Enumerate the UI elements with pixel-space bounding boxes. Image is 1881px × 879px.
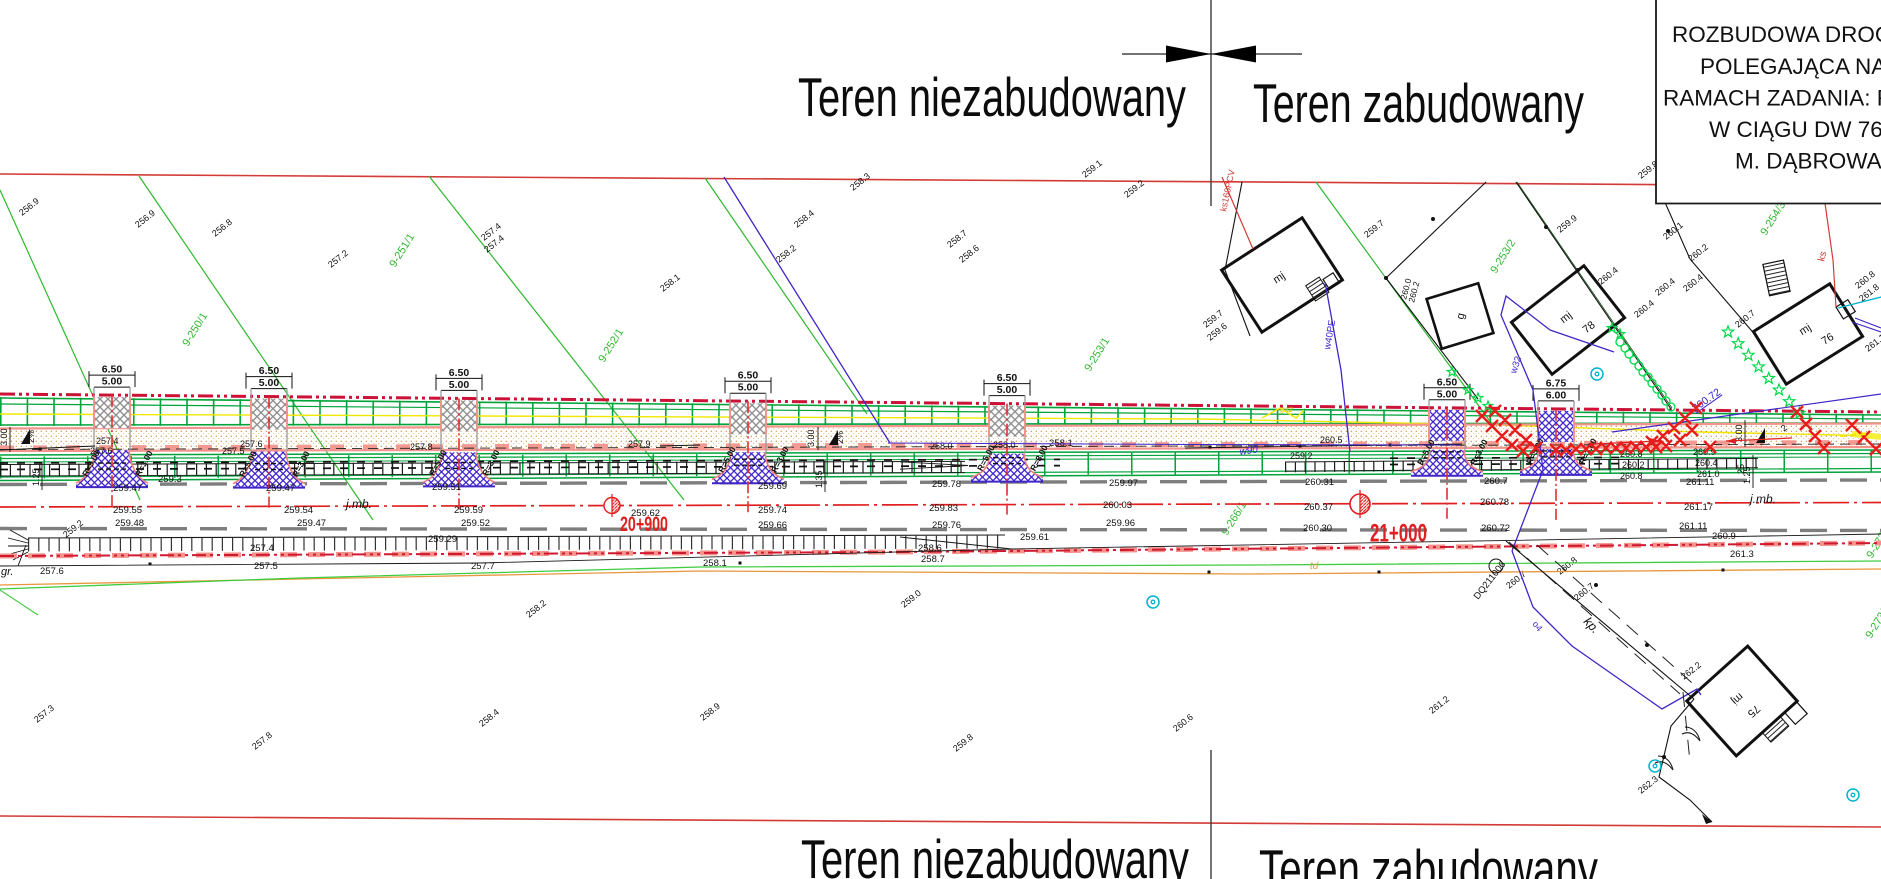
svg-text:25: 25 <box>1736 464 1746 474</box>
svg-text:257.5: 257.5 <box>254 561 278 572</box>
svg-text:258.0: 258.0 <box>993 440 1016 450</box>
svg-text:259.59: 259.59 <box>454 505 483 516</box>
svg-text:1.35: 1.35 <box>814 470 824 488</box>
svg-text:5.00: 5.00 <box>1437 388 1458 400</box>
svg-text:260.7: 260.7 <box>1484 476 1508 487</box>
svg-text:260.9: 260.9 <box>1712 531 1736 542</box>
svg-text:257.8: 257.8 <box>410 442 433 452</box>
svg-text:259.61: 259.61 <box>1020 532 1049 543</box>
svg-text:261.17: 261.17 <box>1684 502 1713 513</box>
svg-text:6.50: 6.50 <box>102 364 123 376</box>
svg-text:W CIĄGU DW 768 W MIEJS: W CIĄGU DW 768 W MIEJS <box>1709 117 1881 142</box>
svg-text:6.00: 6.00 <box>1546 389 1567 401</box>
svg-text:258.7: 258.7 <box>921 554 945 565</box>
svg-text:gr.: gr. <box>1 566 13 578</box>
svg-text:260.31: 260.31 <box>1305 477 1334 488</box>
svg-text:259.2: 259.2 <box>1290 451 1313 461</box>
svg-text:6.75: 6.75 <box>1546 377 1567 389</box>
svg-text:j.mb.: j.mb. <box>1748 492 1776 506</box>
svg-text:259.62: 259.62 <box>631 508 660 519</box>
svg-text:257.5: 257.5 <box>222 446 245 456</box>
svg-text:M. DĄBROWA GMINA: M. DĄBROWA GMINA <box>1735 149 1881 174</box>
svg-text:1.25: 1.25 <box>31 468 41 486</box>
svg-text:259.55: 259.55 <box>113 505 142 516</box>
svg-text:5.00: 5.00 <box>997 384 1018 396</box>
svg-text:261.11: 261.11 <box>1679 521 1707 532</box>
svg-text:257.9: 257.9 <box>628 439 651 449</box>
svg-text:259.47: 259.47 <box>297 518 326 529</box>
svg-text:259.66: 259.66 <box>758 520 787 531</box>
svg-text:6.50: 6.50 <box>738 370 759 382</box>
svg-text:260.03: 260.03 <box>1103 500 1132 511</box>
svg-text:RAMACH ZADANIA: ROZBUD: RAMACH ZADANIA: ROZBUD <box>1663 86 1881 111</box>
svg-text:Teren zabudowany: Teren zabudowany <box>1253 72 1584 134</box>
svg-text:260.37: 260.37 <box>1304 502 1333 513</box>
svg-text:259.51: 259.51 <box>432 482 461 493</box>
svg-text:260.4: 260.4 <box>1695 458 1718 468</box>
svg-text:260.78: 260.78 <box>1480 497 1509 508</box>
svg-text:259.3: 259.3 <box>158 474 182 485</box>
svg-text:260.5: 260.5 <box>1320 435 1343 445</box>
svg-text:j.mb.: j.mb. <box>344 497 372 511</box>
svg-text:258.1: 258.1 <box>703 558 727 569</box>
svg-text:258.6: 258.6 <box>918 543 942 554</box>
svg-text:257.6: 257.6 <box>40 566 64 577</box>
svg-text:260.72: 260.72 <box>1481 523 1510 534</box>
svg-text:259.83: 259.83 <box>929 503 958 514</box>
svg-text:261.0: 261.0 <box>1697 469 1720 479</box>
svg-text:257.7: 257.7 <box>471 561 495 572</box>
svg-text:6.50: 6.50 <box>1437 376 1458 388</box>
svg-text:259.76: 259.76 <box>932 520 961 531</box>
svg-text:2%: 2% <box>26 430 36 443</box>
svg-text:259.52: 259.52 <box>461 518 490 529</box>
svg-text:257.4: 257.4 <box>96 436 119 446</box>
svg-text:5.00: 5.00 <box>102 376 123 388</box>
svg-text:5.00: 5.00 <box>449 379 470 391</box>
svg-text:259.97: 259.97 <box>1109 478 1138 489</box>
svg-text:6.50: 6.50 <box>449 367 470 379</box>
svg-text:258.0: 258.0 <box>930 441 953 451</box>
svg-text:6.50: 6.50 <box>997 372 1018 384</box>
svg-text:259.47: 259.47 <box>113 483 142 494</box>
svg-text:261.3: 261.3 <box>1730 549 1754 560</box>
svg-text:ROZBUDOWA DROGI WOJEW: ROZBUDOWA DROGI WOJEW <box>1672 22 1881 47</box>
svg-text:260.30: 260.30 <box>1303 523 1332 534</box>
svg-text:259.29: 259.29 <box>428 534 457 545</box>
svg-text:td: td <box>1310 561 1319 572</box>
svg-text:3.00: 3.00 <box>0 428 9 446</box>
svg-text:Teren zabudowany: Teren zabudowany <box>1259 838 1598 879</box>
svg-text:21+000: 21+000 <box>1370 520 1427 548</box>
svg-text:259.96: 259.96 <box>1106 518 1135 529</box>
svg-text:2%: 2% <box>835 431 845 444</box>
svg-text:Teren niezabudowany: Teren niezabudowany <box>798 66 1186 128</box>
svg-text:259.47: 259.47 <box>266 483 295 494</box>
svg-text:259.48: 259.48 <box>115 518 144 529</box>
svg-text:5.00: 5.00 <box>738 382 759 394</box>
svg-text:259.78: 259.78 <box>932 479 961 490</box>
svg-text:259.69: 259.69 <box>758 481 787 492</box>
svg-text:POLEGAJĄCA NA ROZBUDO: POLEGAJĄCA NA ROZBUDO <box>1700 54 1881 79</box>
svg-text:Teren niezabudowany: Teren niezabudowany <box>801 828 1189 879</box>
svg-text:5.00: 5.00 <box>259 377 280 389</box>
svg-text:260.2: 260.2 <box>1622 460 1645 470</box>
svg-text:259.54: 259.54 <box>284 505 313 516</box>
svg-text:259.74: 259.74 <box>758 505 787 516</box>
svg-text:260.8: 260.8 <box>1620 471 1643 481</box>
svg-text:257.4: 257.4 <box>250 543 274 554</box>
svg-text:257.6: 257.6 <box>90 446 113 456</box>
svg-text:3.00: 3.00 <box>806 429 816 447</box>
svg-text:6.50: 6.50 <box>259 365 280 377</box>
